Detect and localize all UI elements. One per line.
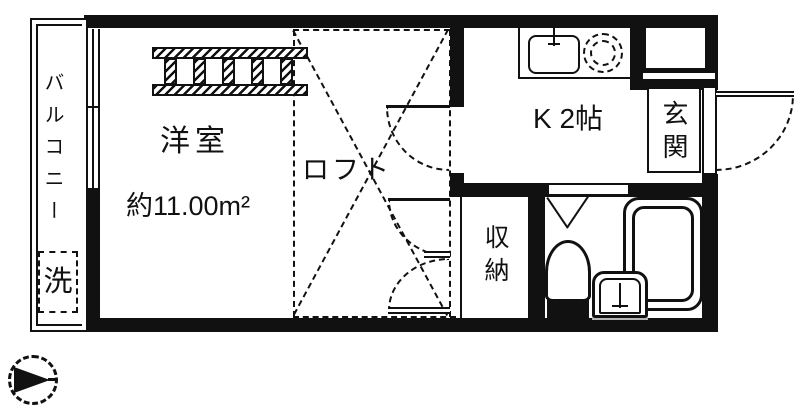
closet-lower-door-swing	[388, 258, 449, 310]
loft-boundary-right	[449, 30, 451, 317]
front-door-swing	[716, 95, 794, 171]
bath-door-opening	[549, 185, 628, 194]
ladder-rail-bottom	[152, 84, 308, 96]
room-label: 洋室	[160, 127, 230, 157]
storage-label: 収納	[482, 224, 507, 290]
loft-label: ロフト	[302, 157, 392, 184]
ladder-rung	[251, 58, 264, 85]
loft-boundary-bottom	[293, 316, 456, 318]
ladder-rung	[193, 58, 206, 85]
faucet-tick	[548, 43, 560, 45]
floor-plan-canvas: バルコニー 洗 ロフト 洋室 約11.00m² K 2帖 玄	[0, 0, 800, 413]
wall-west-lower	[86, 188, 100, 318]
entrance-label: 玄関	[661, 100, 687, 166]
entry-step	[643, 71, 715, 81]
loft-boundary-top	[293, 29, 450, 31]
shoe-cabinet	[646, 28, 705, 68]
washing-machine-box: 洗	[38, 251, 78, 313]
compass-arrow-icon	[14, 367, 50, 393]
compass-arrow-tail	[48, 378, 56, 381]
window-meeting-tick	[86, 106, 100, 108]
folding-door-line-right	[567, 196, 589, 228]
washer-label: 洗	[43, 268, 72, 297]
folding-door-line-left	[546, 197, 568, 229]
ladder-rung	[222, 58, 235, 85]
balcony-label: バルコニー	[42, 72, 62, 232]
vanity-faucet-tick	[612, 305, 628, 307]
front-door-frame	[702, 86, 717, 175]
kitchen-label: K 2帖	[533, 105, 603, 133]
wall-east-lower	[702, 174, 718, 332]
wall-kitchen-west	[450, 15, 464, 107]
ladder-rung	[280, 58, 293, 85]
room-area-label: 約11.00m²	[126, 193, 250, 220]
kitchen-door-swing	[386, 107, 449, 171]
closet-lower-door-panel	[388, 307, 450, 314]
stove-burner-inner	[590, 40, 616, 66]
toilet-icon	[545, 240, 591, 302]
loft-boundary-left	[293, 30, 295, 317]
window-center-line	[92, 29, 94, 188]
wall-storage-bath-divider	[528, 197, 545, 318]
wall-bottom	[84, 318, 718, 332]
closet-upper-door-swing	[388, 200, 449, 257]
ladder-rung	[164, 58, 177, 85]
closet-middle-stub	[424, 251, 450, 258]
